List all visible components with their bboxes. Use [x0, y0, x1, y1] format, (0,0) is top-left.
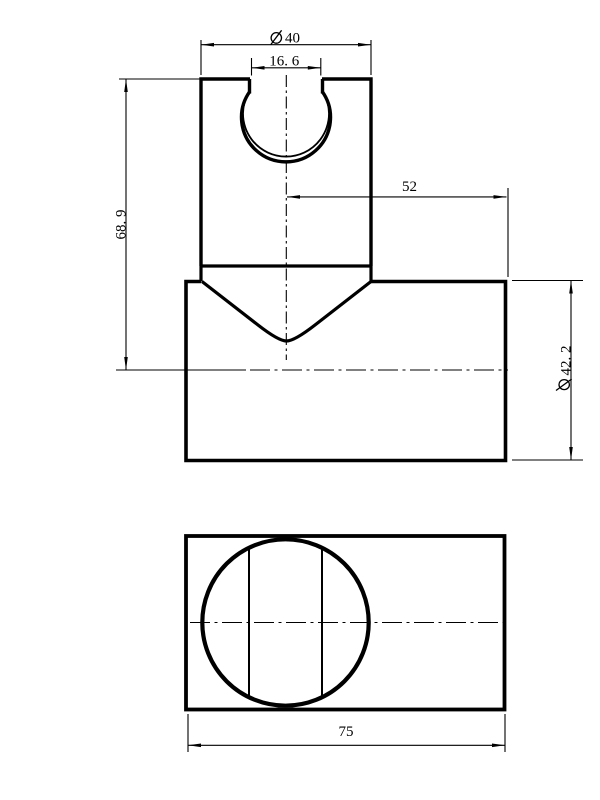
svg-text:40: 40 — [285, 30, 300, 46]
svg-text:42. 2: 42. 2 — [559, 346, 575, 376]
svg-text:68. 9: 68. 9 — [114, 210, 130, 240]
svg-text:16. 6: 16. 6 — [269, 54, 300, 70]
svg-text:52: 52 — [402, 179, 417, 195]
svg-text:75: 75 — [339, 724, 354, 740]
